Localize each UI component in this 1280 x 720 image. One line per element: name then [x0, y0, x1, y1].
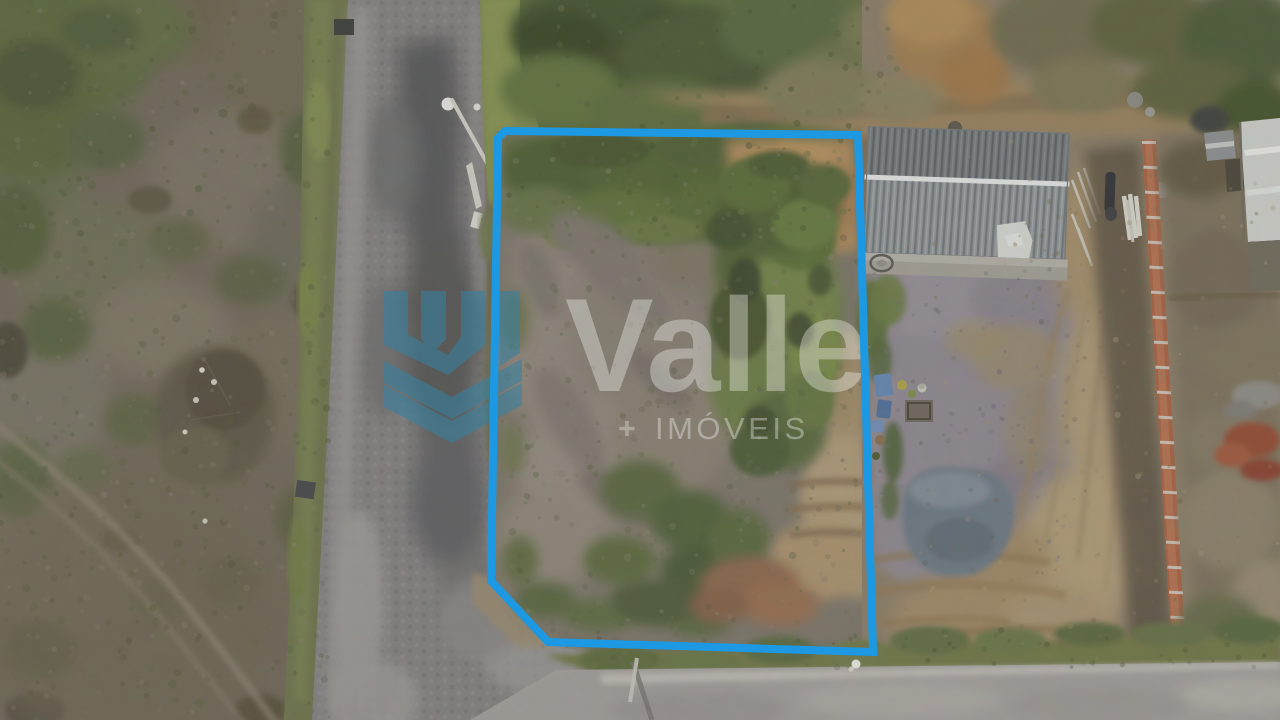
svg-text:IMÓVEIS: IMÓVEIS	[655, 411, 809, 446]
svg-text:Valle: Valle	[565, 272, 868, 420]
